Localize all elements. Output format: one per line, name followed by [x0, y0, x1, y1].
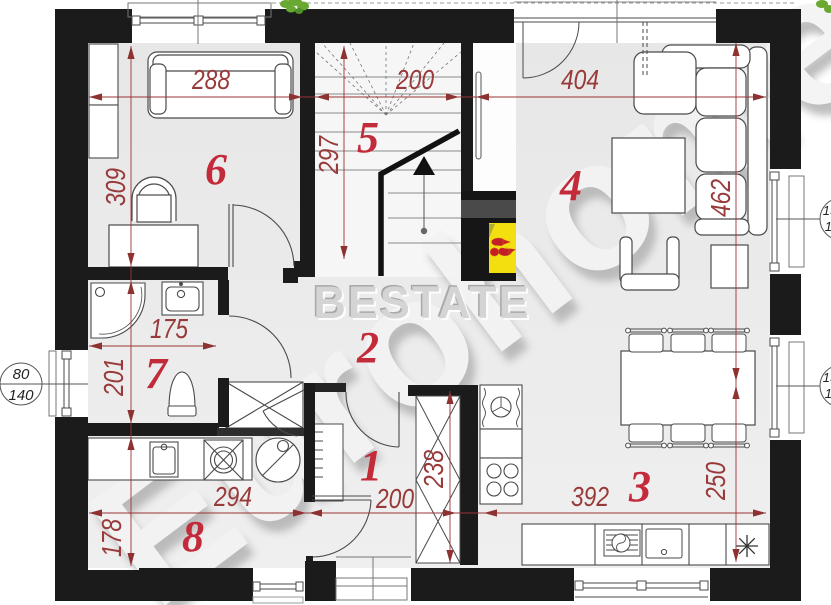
- svg-text:238: 238: [418, 450, 449, 489]
- svg-text:309: 309: [100, 168, 131, 206]
- svg-text:250: 250: [700, 462, 731, 501]
- svg-text:15: 15: [825, 386, 831, 401]
- svg-text:1: 1: [360, 441, 382, 490]
- svg-text:5: 5: [357, 113, 379, 162]
- svg-text:4: 4: [559, 161, 582, 210]
- svg-text:404: 404: [561, 64, 599, 95]
- svg-text:15: 15: [825, 219, 831, 234]
- svg-text:BESTATE: BESTATE: [313, 277, 530, 328]
- svg-text:8: 8: [182, 512, 204, 561]
- svg-text:140: 140: [8, 387, 34, 404]
- svg-text:462: 462: [705, 179, 736, 217]
- svg-text:201: 201: [98, 358, 129, 397]
- svg-text:288: 288: [191, 64, 230, 95]
- svg-text:15: 15: [823, 370, 831, 385]
- svg-text:392: 392: [571, 481, 609, 512]
- svg-text:294: 294: [213, 481, 252, 512]
- svg-text:6: 6: [205, 145, 227, 194]
- svg-text:3: 3: [628, 462, 651, 511]
- svg-text:80: 80: [13, 366, 30, 383]
- svg-text:297: 297: [313, 135, 344, 175]
- svg-text:15: 15: [823, 203, 831, 218]
- svg-text:2: 2: [356, 323, 379, 372]
- svg-text:175: 175: [150, 313, 188, 344]
- svg-text:178: 178: [96, 519, 127, 557]
- svg-text:7: 7: [145, 349, 169, 398]
- svg-text:200: 200: [395, 64, 434, 95]
